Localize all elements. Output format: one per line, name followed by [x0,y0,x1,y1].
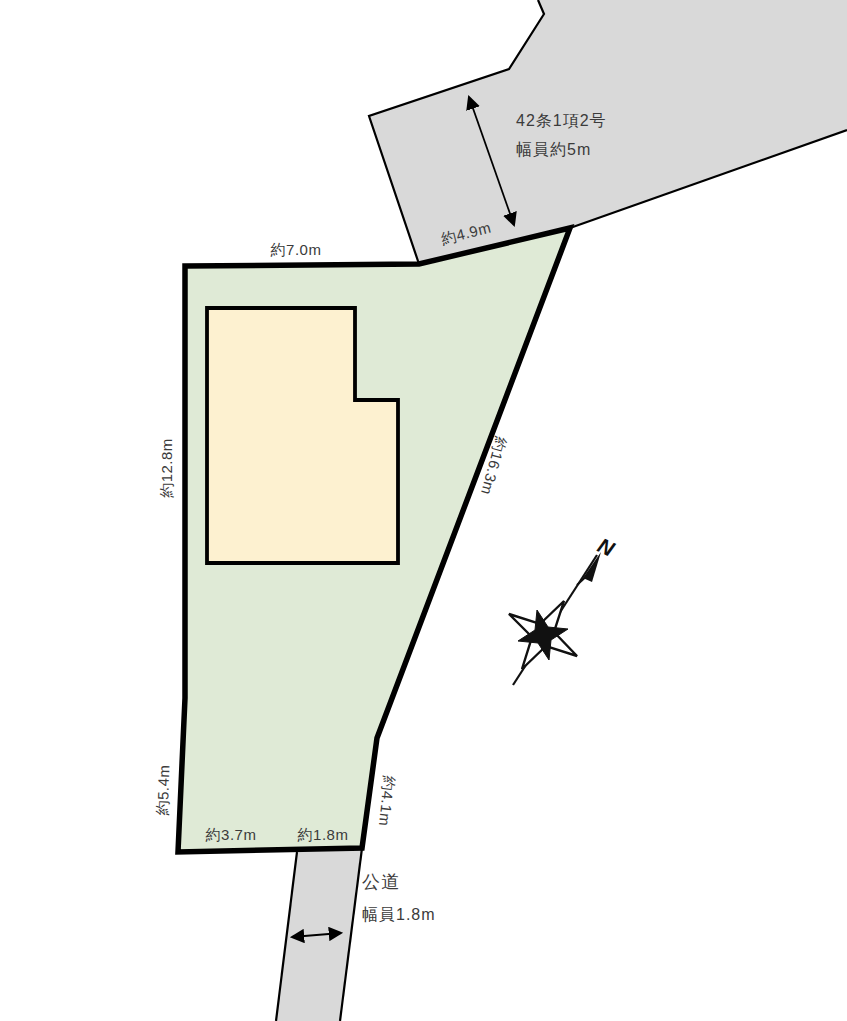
dim-right-lower-label: 約4.1m [376,775,398,827]
compass-rose: N [509,533,618,685]
dim-top-label: 約7.0m [271,241,322,258]
dim-left-lower-label: 約5.4m [154,764,173,815]
dim-left-upper-label: 約12.8m [158,438,175,498]
north-arrowhead-icon [583,552,601,582]
bottom-road-type-label: 公道 [362,872,400,892]
compass-star-inner [518,610,568,660]
dim-bottom-left-label: 約3.7m [206,826,257,843]
dim-bottom-right-label: 約1.8m [298,826,349,843]
top-road-area [369,0,847,264]
site-plan-canvas: N 約7.0m 約4.9m 約12.8m 約5.4m 約16.3m 約4.1m … [0,0,847,1021]
top-road-width-label: 幅員約5m [516,141,591,158]
bottom-road-width-label: 幅員1.8m [362,906,436,923]
top-road-regulation-label: 42条1項2号 [516,112,607,129]
site-plan-drawing: N 約7.0m 約4.9m 約12.8m 約5.4m 約16.3m 約4.1m … [0,0,847,1021]
